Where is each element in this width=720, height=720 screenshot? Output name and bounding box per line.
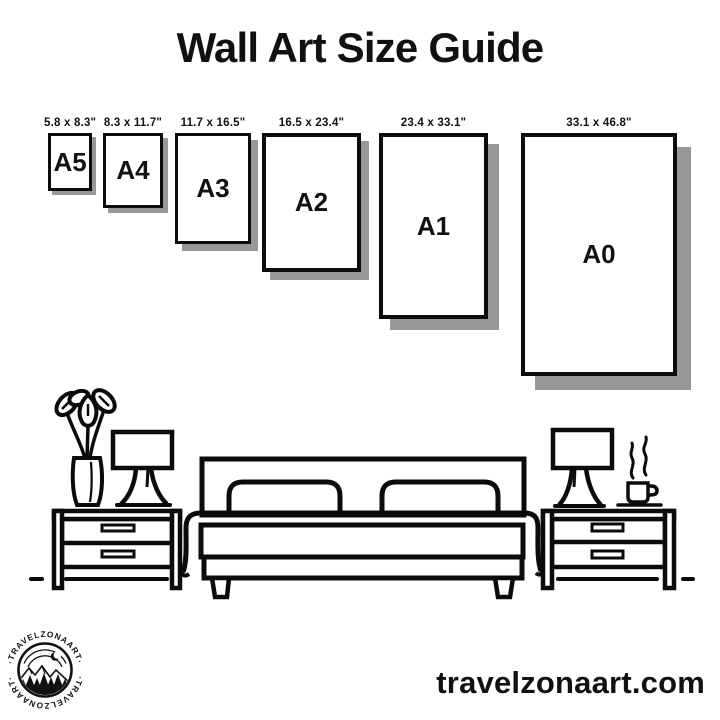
plant-vase-icon — [52, 386, 118, 505]
bed-icon — [182, 459, 541, 597]
size-item-a0: 33.1 x 46.8" A0 — [521, 117, 677, 376]
size-dimensions-label: 23.4 x 33.1" — [401, 117, 466, 129]
poster-frame-a0: A0 — [521, 133, 677, 376]
nightstand-left-icon — [54, 511, 180, 588]
poster-frame-a3: A3 — [175, 133, 251, 244]
poster-frame-a1: A1 — [379, 133, 488, 319]
size-dimensions-label: 8.3 x 11.7" — [104, 117, 162, 129]
size-item-a2: 16.5 x 23.4" A2 — [262, 117, 361, 272]
size-name-label: A1 — [417, 211, 450, 242]
size-dimensions-label: 11.7 x 16.5" — [181, 117, 246, 129]
size-item-a1: 23.4 x 33.1" A1 — [379, 117, 488, 319]
poster-frame-a2: A2 — [262, 133, 361, 272]
size-dimensions-label: 33.1 x 46.8" — [566, 117, 631, 129]
size-name-label: A0 — [582, 239, 615, 270]
size-item-a5: 5.8 x 8.3" A5 — [44, 117, 96, 191]
website-url: travelzonaart.com — [436, 665, 705, 701]
bedroom-scene-illustration — [0, 380, 720, 610]
poster-frame-a4: A4 — [103, 133, 163, 208]
size-dimensions-label: 5.8 x 8.3" — [44, 117, 96, 129]
size-name-label: A4 — [116, 155, 149, 186]
coffee-cup-icon — [618, 437, 661, 505]
size-name-label: A5 — [53, 147, 86, 178]
table-lamp-right-icon — [553, 430, 612, 506]
size-dimensions-label: 16.5 x 23.4" — [279, 117, 344, 129]
table-lamp-left-icon — [113, 432, 172, 505]
size-item-a3: 11.7 x 16.5" A3 — [175, 117, 251, 244]
page-title: Wall Art Size Guide — [0, 24, 720, 72]
pillow-left-icon — [229, 482, 340, 513]
poster-frame-a5: A5 — [48, 133, 92, 191]
brand-logo-badge: ·TRAVELZONAART· ·TRAVELZONAART· — [2, 624, 88, 712]
size-name-label: A2 — [295, 187, 328, 218]
size-item-a4: 8.3 x 11.7" A4 — [103, 117, 163, 208]
pillow-right-icon — [382, 482, 498, 513]
size-name-label: A3 — [196, 173, 229, 204]
nightstand-right-icon — [543, 511, 674, 588]
